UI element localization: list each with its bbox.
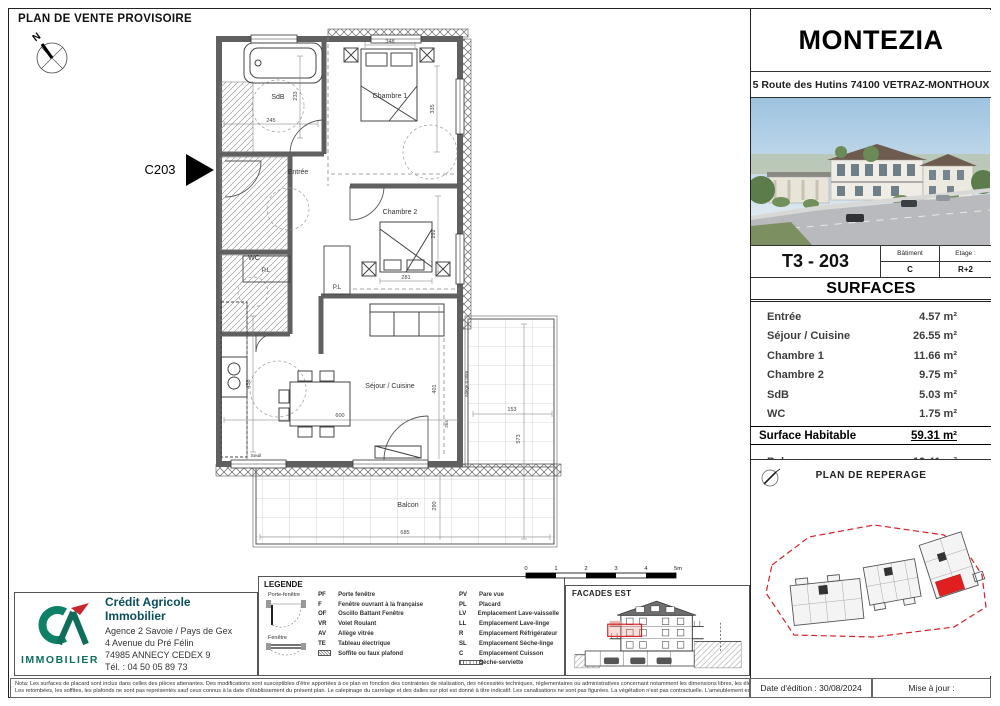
legend-abbr: LL [459, 621, 479, 627]
batiment-label: Bâtiment [881, 246, 939, 262]
surface-value: 9.75 m² [879, 369, 957, 381]
porte-fenetre-icon [264, 598, 310, 628]
legend-abbr: VR [318, 621, 338, 627]
soffite-hatch-sdb [220, 82, 253, 152]
dim-364: 364 [444, 420, 449, 428]
facade-title: FACADES EST [572, 589, 743, 598]
dim-292: 292 [431, 229, 437, 238]
scale-2: 2 [584, 566, 587, 572]
agency-line-1: Agence 2 Savoie / Pays de Gex [105, 625, 251, 637]
date-edition-box: Date d'édition : 30/08/2024 [750, 678, 872, 698]
etage-label: Etage : [939, 246, 991, 262]
dim-233: 233 [293, 91, 299, 100]
legend-drawings: Porte-fenêtre Fenêtre [264, 590, 318, 668]
legend-abbr: PL [459, 602, 479, 608]
legend-label: Volet Roulant [338, 621, 376, 627]
legend-label: Soffite ou faux plafond [338, 651, 403, 657]
scale-1: 1 [554, 566, 557, 572]
room-chambre2: Chambre 2 [383, 209, 418, 216]
surface-label: Chambre 2 [751, 369, 879, 381]
etage-value: R+2 [939, 262, 991, 278]
unit-marker: C203 [144, 154, 214, 186]
legend-label: Placard [479, 602, 501, 608]
unit-marker-label: C203 [144, 162, 175, 177]
scale-4: 4 [644, 566, 648, 572]
note-line-2: Les retombées, les soffites, les plafond… [15, 688, 745, 696]
note-line-1: Nota: Les surfaces de placard sont inclu… [15, 681, 745, 689]
reperage-title: PLAN DE REPERAGE [751, 470, 991, 481]
entrance-arrow-icon [186, 154, 214, 186]
legend-box: LEGENDE Porte-fenêtre Fenêtre PFPorte [258, 576, 565, 676]
agency-line-2: 4 Avenue du Pré Félin [105, 637, 251, 649]
fenetre-icon [264, 641, 310, 661]
note-box: Nota: Les surfaces de placard sont inclu… [10, 678, 750, 698]
legend-abbr: TE [318, 641, 338, 647]
surface-row: Entrée4.57 m² [751, 307, 991, 327]
facade-drawing [572, 598, 744, 672]
legend-label: Pare vue [479, 592, 504, 598]
legend-abbr: PV [459, 592, 479, 598]
surface-label: Entrée [751, 311, 879, 323]
floor-plan: 245 348 233 335 292 281 458 600 401 364 … [128, 24, 750, 569]
site-building-3 [919, 529, 986, 598]
room-placard-2: P.L [333, 285, 342, 291]
room-sdb: SdB [271, 94, 285, 101]
surface-total-value: 59.31 m² [879, 430, 957, 442]
surfaces-title: SURFACES [751, 278, 991, 302]
room-balcon: Balcon [397, 502, 419, 509]
site-plan [754, 485, 988, 653]
dim-281: 281 [401, 275, 410, 281]
legend-label: Emplacement Sèche-linge [479, 641, 553, 647]
credit-agricole-logo-icon [29, 602, 91, 648]
legend-label: Emplacement Cuisson [479, 651, 543, 657]
balcony-area [253, 316, 557, 547]
dim-153: 153 [507, 407, 516, 413]
agency-line-3: 74985 ANNECY CEDEX 9 [105, 649, 251, 661]
surface-row: Chambre 111.66 m² [751, 346, 991, 366]
surface-row: SdB5.03 m² [751, 385, 991, 405]
surface-value: 4.57 m² [879, 311, 957, 323]
project-address-box: 5 Route des Hutins 74100 VETRAZ-MONTHOUX [751, 72, 991, 98]
scale-3: 3 [614, 566, 617, 572]
legend-abbr: OF [318, 611, 338, 617]
surface-value: 11.66 m² [879, 350, 957, 362]
legend-abbr: PF [318, 592, 338, 598]
dim-458: 458 [246, 379, 252, 388]
legend-label: Tableau électrique [338, 641, 390, 647]
allege-label: Allège 0.90m [464, 371, 469, 398]
legend-abbr: F [318, 602, 338, 608]
dim-348: 348 [385, 39, 394, 45]
mise-a-jour-box: Mise à jour : [872, 678, 991, 698]
unit-code: T3 - 203 [751, 246, 881, 277]
surface-total-row: Surface Habitable59.31 m² [751, 426, 991, 445]
legend-label: Emplacement Lave-vaisselle [478, 611, 559, 617]
surface-total-label: Surface Habitable [751, 430, 879, 442]
agency-name: Crédit Agricole Immobilier [105, 595, 251, 623]
room-chambre1: Chambre 1 [373, 93, 408, 100]
legend-label: Allège vitrée [338, 631, 374, 637]
surface-row: Séjour / Cuisine26.55 m² [751, 327, 991, 347]
facade-box: FACADES EST [565, 585, 750, 676]
project-name-box: MONTEZIA [751, 10, 991, 72]
surface-value: 5.03 m² [879, 389, 957, 401]
project-photo-render [751, 98, 990, 246]
legend-column-right: PVPare vue PLPlacard LVEmplacement Lave-… [459, 590, 559, 668]
seuil-label: Seuil [251, 453, 262, 459]
reperage-section: PLAN DE REPERAGE [751, 460, 991, 676]
legend-label: Emplacement Réfrigérateur [479, 631, 557, 637]
legend-label: Oscillo Battant Fenêtre [338, 611, 404, 617]
scale-0: 0 [524, 566, 527, 572]
agency-box: IMMOBILIER Crédit Agricole Immobilier Ag… [14, 592, 258, 676]
dim-600: 600 [335, 413, 344, 419]
surface-label: WC [751, 408, 879, 420]
surface-row: Chambre 29.75 m² [751, 366, 991, 386]
dim-245: 245 [266, 118, 275, 124]
site-building-1 [789, 572, 863, 625]
surface-label: SdB [751, 389, 879, 401]
compass-icon: N [24, 28, 78, 82]
room-entree: Entrée [288, 169, 309, 176]
surface-value: 1.75 m² [879, 408, 957, 420]
agency-logo: IMMOBILIER [21, 602, 99, 666]
project-photo [751, 98, 991, 246]
unit-info-row: T3 - 203 Bâtiment Etage : C R+2 [751, 246, 991, 278]
scale-bar: 0 1 2 3 4 5m [518, 562, 718, 584]
room-placard-1: P.L [262, 268, 271, 274]
room-wc: WC [248, 255, 260, 262]
legend-label: Emplacement Lave-linge [479, 621, 549, 627]
hatch-box-icon [318, 650, 338, 658]
towel-rail-icon [459, 660, 479, 667]
dim-685: 685 [400, 530, 409, 536]
surface-label: Chambre 1 [751, 350, 879, 362]
legend-title: LEGENDE [264, 580, 559, 589]
legend-label: Sèche-serviette [479, 660, 523, 666]
dim-401: 401 [432, 384, 438, 393]
reperage-compass-icon [759, 464, 785, 490]
legend-label: Fenêtre ouvrant à la française [338, 602, 423, 608]
scale-5m: 5m [674, 566, 682, 572]
plan-sheet: PLAN DE VENTE PROVISOIRE N [0, 0, 1000, 706]
legend-abbr: AV [318, 631, 338, 637]
dim-573: 573 [516, 434, 522, 443]
site-building-2 [863, 559, 922, 611]
dim-335: 335 [430, 104, 436, 113]
surface-label: Séjour / Cuisine [751, 330, 879, 342]
soffite-hatch-entree [220, 157, 288, 250]
legend-column-left: PFPorte fenêtre FFenêtre ouvrant à la fr… [318, 590, 459, 668]
surface-value: 26.55 m² [879, 330, 957, 342]
legend-abbr: LV [459, 611, 478, 617]
project-address: 5 Route des Hutins 74100 VETRAZ-MONTHOUX [753, 79, 990, 91]
agency-logo-caption: IMMOBILIER [21, 654, 99, 666]
legend-label: Porte fenêtre [338, 592, 375, 598]
surfaces-table: Entrée4.57 m² Séjour / Cuisine26.55 m² C… [751, 302, 991, 460]
dim-290: 290 [432, 501, 438, 510]
legend-abbr: C [459, 651, 479, 657]
legend-abbr: SL [459, 641, 479, 647]
surface-row: WC1.75 m² [751, 405, 991, 425]
agency-line-4: Tél. : 04 50 05 89 73 [105, 661, 251, 673]
project-name: MONTEZIA [799, 25, 944, 56]
batiment-value: C [881, 262, 939, 278]
soffite-hatch-wc [220, 255, 288, 332]
legend-abbr: R [459, 631, 479, 637]
facade-unit-highlight [608, 624, 642, 636]
compass-north-label: N [31, 31, 43, 44]
room-sejour: Séjour / Cuisine [365, 383, 415, 390]
